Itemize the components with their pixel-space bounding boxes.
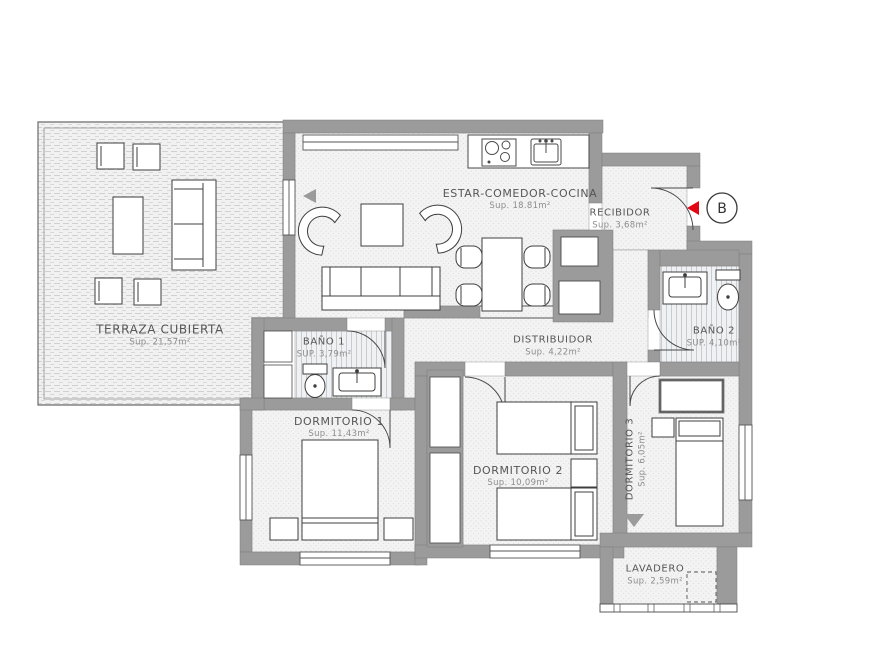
terrace-sliding-door — [283, 180, 295, 235]
dining-chair — [524, 246, 550, 268]
estar-window — [303, 135, 458, 150]
closet-strip — [264, 331, 292, 398]
lavadero-floor — [613, 547, 717, 605]
bathroom-sink-icon — [663, 272, 707, 304]
bano1-fixtures — [303, 364, 381, 398]
floor-plan-svg: B — [0, 0, 882, 650]
coffee-table — [361, 204, 403, 246]
entrance-arrow-icon — [687, 201, 699, 215]
cooktop-icon — [482, 139, 516, 166]
wardrobe — [660, 380, 723, 412]
terrace-chair — [134, 279, 161, 305]
kitchen-counter — [468, 135, 589, 168]
toilet-icon — [716, 270, 740, 310]
terrace-chair — [133, 144, 160, 170]
bed-single — [497, 402, 597, 454]
terrace-chair — [95, 278, 122, 304]
bed-single — [497, 488, 597, 540]
bed-double — [302, 440, 378, 540]
entrance-marker: B — [687, 193, 737, 223]
nightstand — [270, 518, 298, 540]
dorm2-bottom-window — [490, 545, 580, 558]
kitchen-sink-icon — [531, 139, 561, 165]
dorm3-right-window — [739, 425, 752, 500]
nightstand — [571, 459, 597, 487]
floor-plan-canvas: B TERRAZA CUBIERTA Sup. 21,57m² ESTAR-CO… — [0, 0, 882, 650]
dorm1-bottom-window — [300, 552, 390, 565]
terrace-table — [113, 197, 143, 254]
bano2-fixtures — [663, 270, 740, 310]
dining-chair — [456, 284, 482, 306]
recibidor-floor — [602, 166, 687, 250]
toilet-icon — [303, 364, 327, 398]
terrace-sofa — [172, 180, 216, 270]
dining-chair — [524, 284, 550, 306]
nightstand — [652, 418, 674, 437]
bathroom-sink-icon — [333, 368, 381, 396]
nightstand — [384, 518, 413, 540]
sofa — [322, 267, 440, 310]
dining-chair — [456, 246, 482, 268]
dining-table — [482, 238, 522, 311]
built-in-wardrobes — [427, 370, 463, 547]
terrace-floor — [38, 122, 287, 405]
bed-single — [676, 418, 723, 526]
entrance-marker-label: B — [717, 201, 727, 217]
terrace-chair — [97, 143, 124, 169]
dorm1-left-window — [240, 455, 252, 520]
